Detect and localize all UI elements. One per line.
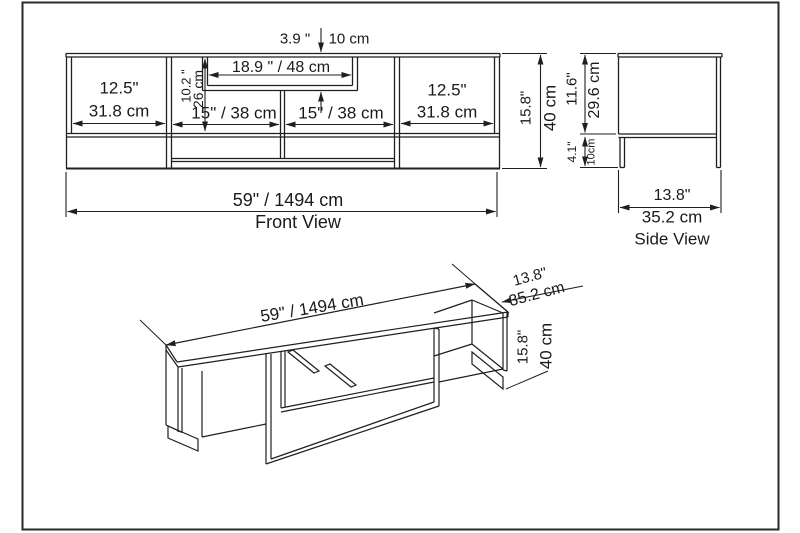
front-recess-width-label: 18.9 " / 48 cm: [232, 60, 330, 76]
front-height-inch-label: 15.8": [519, 91, 534, 126]
front-top-gap-inch-label: 3.9 ": [280, 32, 310, 47]
front-top-gap-cm-label: 10 cm: [329, 32, 370, 47]
front-recess-height-cm-label: 26 cm: [191, 70, 205, 108]
side-depth-cm-label: 35.2 cm: [642, 209, 702, 226]
front-mid-right-compartment-label: 15" / 38 cm: [298, 105, 383, 122]
perspective-height-cm-label: 40 cm: [538, 323, 555, 369]
side-lower-height-inch-label: 4.1": [566, 142, 578, 163]
technical-drawing-canvas: 3.9 " 10 cm 18.9 " / 48 cm 10.2 " 26 cm …: [0, 0, 800, 533]
perspective-height-inch-label: 15.8": [516, 330, 531, 365]
front-right-compartment-cm-label: 31.8 cm: [417, 104, 477, 121]
front-height-cm-label: 40 cm: [542, 85, 559, 131]
front-overall-width-label: 59" / 1494 cm: [233, 191, 343, 209]
front-mid-left-compartment-label: 15" / 38 cm: [191, 105, 276, 122]
side-view-title: Side View: [634, 231, 709, 248]
side-upper-height-cm-label: 29.6 cm: [587, 62, 603, 119]
front-view-title: Front View: [255, 213, 341, 231]
front-left-compartment-inch-label: 12.5": [99, 80, 138, 97]
side-view-drawing: [618, 54, 722, 168]
side-upper-height-inch-label: 11.6": [565, 72, 580, 105]
front-right-compartment-inch-label: 12.5": [427, 82, 466, 99]
side-depth-inch-label: 13.8": [654, 188, 691, 204]
side-lower-height-cm-label: 10cm: [587, 139, 598, 166]
front-left-compartment-cm-label: 31.8 cm: [89, 103, 149, 120]
